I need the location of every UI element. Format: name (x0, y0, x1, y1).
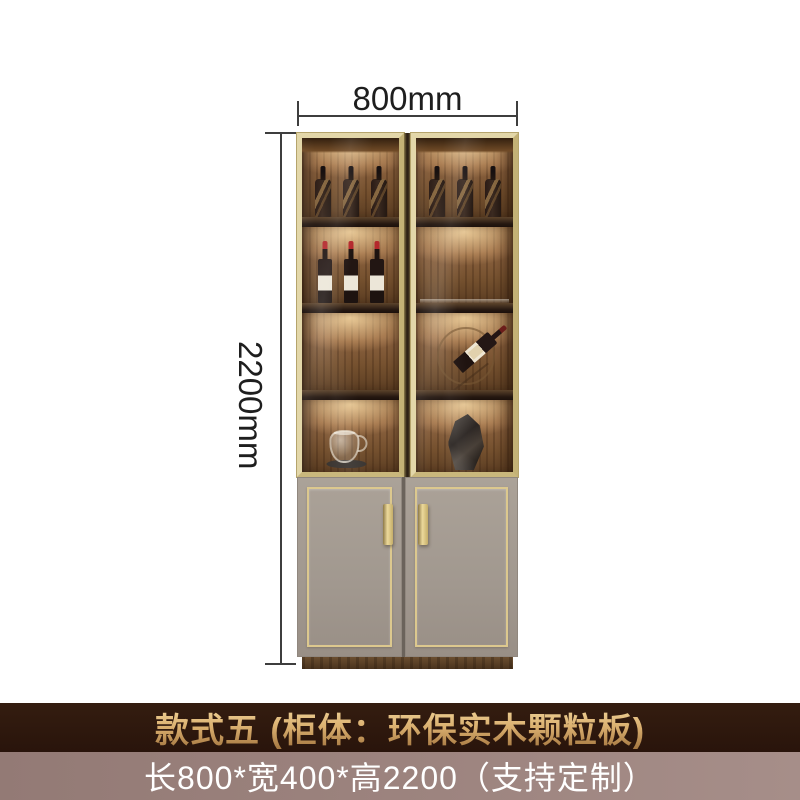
wine-bottle (318, 259, 332, 303)
glass-door-left-interior (302, 138, 399, 472)
wine-bottle (370, 259, 384, 303)
door-gap (404, 133, 411, 477)
size-banner-text: 长800*宽400*高2200（支持定制） (144, 753, 656, 799)
faceted-vase (448, 414, 484, 470)
compartment-vase (416, 400, 513, 472)
height-dimension-tick-top (265, 132, 296, 134)
whisky-bottle (371, 179, 387, 217)
cabinet-plinth (302, 657, 513, 669)
glass-teapot (325, 424, 369, 468)
width-dimension-label: 800mm (297, 80, 518, 118)
teapot-handle (357, 435, 367, 452)
wine-cabinet (297, 133, 518, 668)
whisky-bottle-row (416, 166, 513, 217)
size-banner: 长800*宽400*高2200（支持定制） (0, 752, 800, 800)
shelf-board (302, 390, 399, 400)
whisky-bottle (343, 179, 359, 217)
whisky-bottle (485, 179, 501, 217)
height-dimension-line (280, 133, 282, 664)
door-handle-right (418, 504, 428, 545)
shelf-board (416, 217, 513, 227)
compartment-teapot (302, 400, 399, 472)
lower-door-left (297, 477, 402, 657)
glass-door-right (411, 133, 518, 477)
shelf-board (302, 217, 399, 227)
wine-bottle (344, 259, 358, 303)
whisky-bottle (429, 179, 445, 217)
style-banner: 款式五 (柜体：环保实木颗粒板) (0, 703, 800, 752)
teapot-body (329, 430, 359, 463)
glass-door-right-interior (416, 138, 513, 472)
compartment-wine-shelf (302, 227, 399, 303)
wine-bottle-row (302, 241, 399, 303)
width-dimension-line (298, 115, 517, 117)
whisky-bottle (457, 179, 473, 217)
width-dimension-tick-right (516, 101, 518, 126)
glass-display-section (297, 133, 518, 477)
shelf-board (416, 390, 513, 400)
compartment-whisky-shelf (416, 138, 513, 217)
shelf-board (416, 303, 513, 313)
height-dimension-tick-bottom (265, 663, 296, 665)
compartment-empty-glass-shelf (416, 227, 513, 303)
width-dimension-tick-left (297, 101, 299, 126)
door-handle-left (383, 504, 393, 545)
whisky-bottle (315, 179, 331, 217)
shelf-board (302, 303, 399, 313)
whisky-bottle-row (302, 166, 399, 217)
lower-door-right (405, 477, 518, 657)
wine-rack (434, 321, 500, 387)
product-page: 800mm 2200mm (0, 0, 800, 800)
compartment-empty-lit (302, 313, 399, 390)
style-banner-text: 款式五 (柜体：环保实木颗粒板) (155, 703, 645, 752)
compartment-whisky-shelf (302, 138, 399, 217)
glass-door-left (297, 133, 404, 477)
height-dimension-label: 2200mm (231, 341, 269, 469)
compartment-display-bottle (416, 313, 513, 390)
lower-cabinet-section (297, 477, 518, 657)
